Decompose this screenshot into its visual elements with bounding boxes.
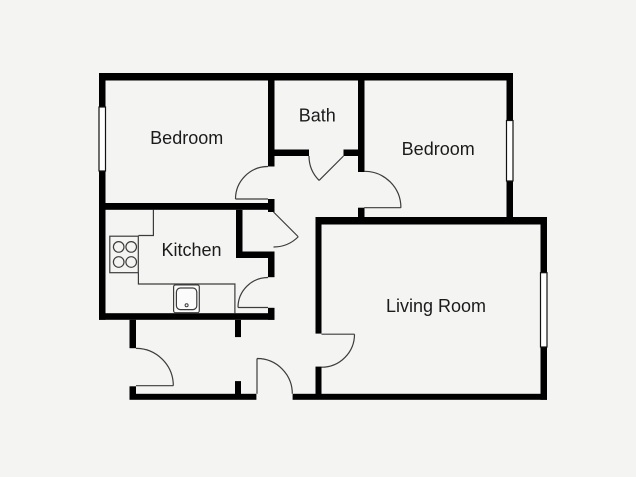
svg-text:Bedroom: Bedroom [402,139,475,159]
svg-text:Bedroom: Bedroom [150,128,223,148]
svg-text:Bath: Bath [299,106,336,126]
svg-text:Kitchen: Kitchen [161,240,221,260]
svg-text:Living Room: Living Room [386,296,486,316]
